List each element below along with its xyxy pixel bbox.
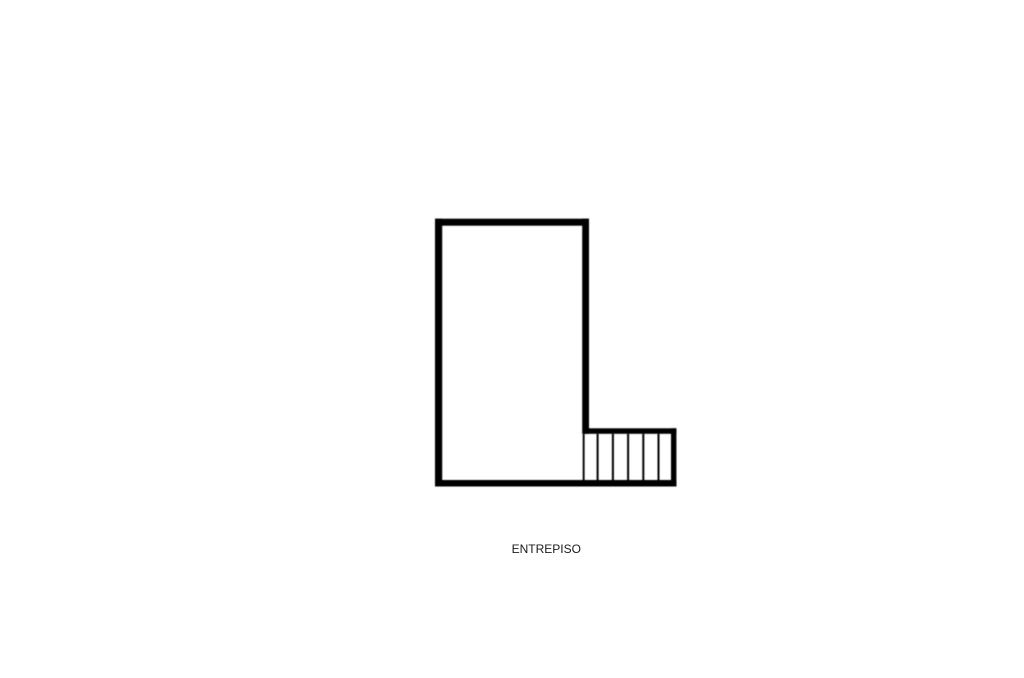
svg-text:ENTREPISO: ENTREPISO [512,542,581,556]
